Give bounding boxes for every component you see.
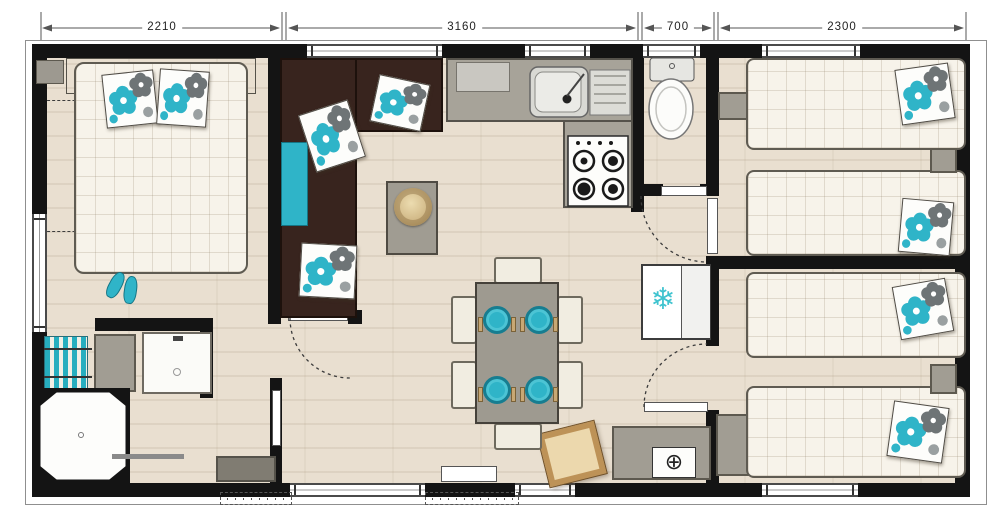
floral-pillow (894, 63, 955, 126)
towel-rail (112, 454, 184, 459)
entrance-door (441, 466, 497, 482)
entrance-steps (220, 492, 292, 505)
entrance-steps (425, 492, 519, 505)
nightstand (930, 148, 957, 173)
floral-pillow (886, 400, 949, 463)
shower-drain (78, 432, 84, 438)
towel-radiator (44, 336, 88, 390)
faucet (173, 336, 183, 341)
window (762, 44, 860, 58)
place-setting (525, 306, 553, 334)
place-setting (525, 376, 553, 404)
window (643, 44, 700, 58)
dining-chair (494, 257, 542, 284)
window (525, 44, 590, 58)
window (762, 483, 858, 497)
kitchen-counter-side (563, 120, 633, 208)
fridge: ❄ (641, 264, 711, 340)
radiator-rail (44, 348, 92, 350)
heater-emblem-icon: ⊕ (652, 447, 696, 478)
snowflake-icon: ❄ (645, 282, 681, 318)
dining-table (475, 282, 559, 424)
bathroom-cabinet (94, 334, 136, 392)
shower (36, 388, 130, 484)
window (307, 44, 442, 58)
window (290, 483, 425, 497)
floral-pillow (892, 278, 955, 341)
dining-chair (557, 296, 583, 344)
dining-chair (451, 361, 477, 409)
nightstand (930, 364, 957, 394)
wall-corridor-1 (706, 44, 719, 196)
window (515, 483, 575, 497)
doormat (216, 456, 276, 482)
fridge-door (681, 266, 710, 338)
floral-pillow (898, 198, 955, 256)
floral-pillow (156, 68, 210, 127)
dining-chair (451, 296, 477, 344)
wall-bedrooms-divider (718, 256, 958, 269)
floor-plan: 2210 3160 700 2300 (0, 0, 1000, 521)
bedroom-top-right-door (707, 198, 718, 254)
dimension-label: 2300 (822, 21, 862, 33)
wall-toilet-bottom (631, 184, 663, 196)
sofa-teal-chaise (281, 142, 308, 226)
window (32, 214, 47, 332)
dining-chair (557, 361, 583, 409)
dimension-label: 2210 (142, 21, 182, 33)
toilet-door (661, 186, 707, 196)
bedroom-bottom-right-door (644, 402, 708, 412)
cutting-board (456, 62, 510, 92)
washbasin (142, 332, 212, 394)
entry-door (272, 390, 281, 446)
bedside-box (36, 60, 64, 84)
heater-cabinet: ⊕ (612, 426, 711, 480)
place-setting (483, 376, 511, 404)
drain (173, 368, 181, 376)
straw-hat (394, 188, 432, 226)
radiator-rail (44, 376, 92, 378)
floral-pillow (101, 69, 158, 128)
dimension-label: 3160 (442, 21, 482, 33)
wall-bathroom-top (95, 318, 212, 331)
floral-pillow (370, 74, 431, 132)
place-setting (483, 306, 511, 334)
dimension-label: 700 (662, 21, 694, 33)
floral-pillow (299, 243, 358, 300)
dining-chair (494, 423, 542, 450)
